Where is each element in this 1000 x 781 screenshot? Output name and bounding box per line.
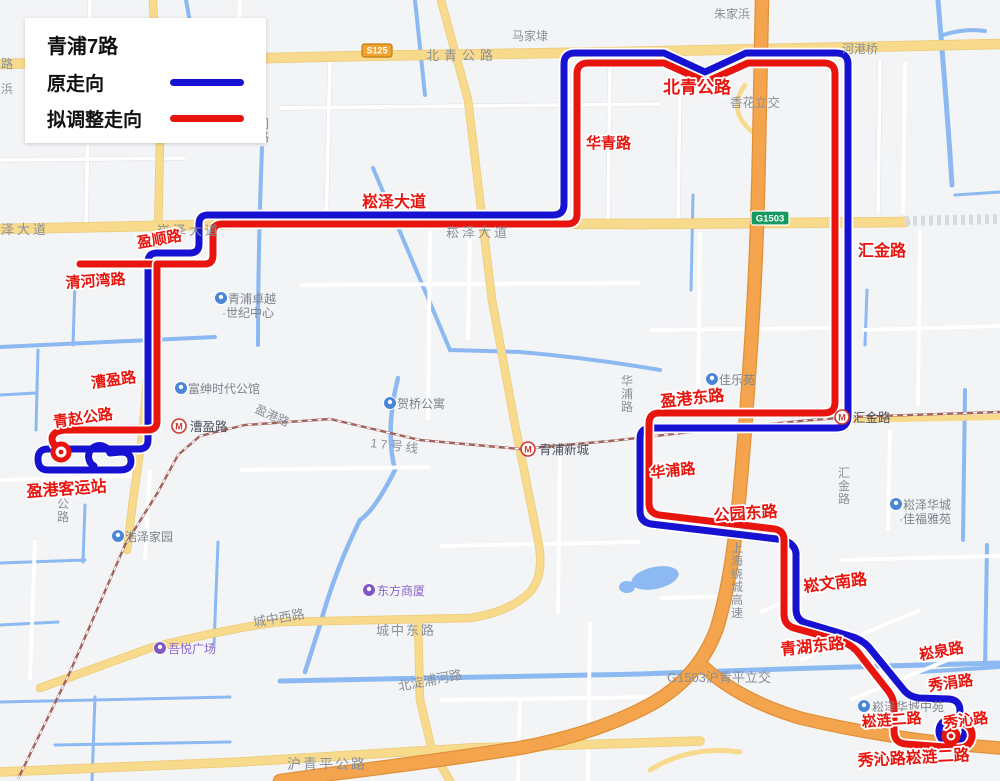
poi-贺桥公寓: 贺桥公寓 [384,396,446,411]
map-label: 华浦路 [621,374,633,414]
legend-item-adjusted: 拟调整走向 [47,105,247,132]
map-label: 城中东路 [376,623,436,638]
poi-佳乐苑: 佳乐苑 [706,373,756,388]
map-label: 汇金路 [838,466,850,506]
poi-浩泽家园: 浩泽家园 [112,529,174,544]
legend-swatch-adjusted-line [170,115,244,122]
poi-吾悦广场: 吾悦广场 [154,642,217,657]
map-label: 河港桥 [842,42,878,56]
map-label: 北青公路 [426,48,498,63]
map-label: 浜 [1,82,13,96]
legend-swatch-original-line [170,79,244,86]
svg-text:S125: S125 [366,46,387,56]
legend-title: 青浦7路 [47,30,266,59]
map-label: 朱家浜 [714,6,750,21]
svg-text:·佳福雅苑: ·佳福雅苑 [899,511,951,526]
poi-富绅时代公馆: 富绅时代公馆 [175,381,261,396]
svg-text:浩泽家园: 浩泽家园 [125,529,173,544]
poi-崧泽华城: 崧泽华城·佳福雅苑 [890,498,952,527]
svg-text:M: M [838,412,846,422]
svg-text:富绅时代公馆: 富绅时代公馆 [188,381,260,396]
svg-text:汇金路: 汇金路 [853,410,891,425]
legend-label-original: 原走向 [47,69,104,96]
road-badge-S125: S125 [362,44,392,57]
poi-青浦卓越: 青浦卓越·世纪中心 [215,292,277,321]
svg-text:M: M [524,444,532,454]
svg-text:M: M [175,421,183,431]
svg-text:东方商厦: 东方商厦 [377,583,425,598]
road-badge-G1503: G1503 [751,211,789,225]
svg-text:青浦新城: 青浦新城 [539,442,590,457]
legend-card: 青浦7路 原走向 拟调整走向 [25,18,266,143]
svg-text:G1503: G1503 [756,214,785,225]
map-label: G1503沪青平立交 [667,670,771,685]
metro-station-汇金路: M汇金路 [835,410,891,425]
poi-东方商厦: 东方商厦 [363,583,426,598]
route-label: 华青路 [586,134,632,152]
legend-label-adjusted: 拟调整走向 [47,105,142,132]
map-label: 香花立交 [730,95,780,110]
map-label: 沪青平公路 [287,756,367,772]
svg-text:青浦卓越: 青浦卓越 [228,292,276,306]
svg-text:崧泽华城: 崧泽华城 [903,498,951,512]
route-label: 汇金路 [858,241,907,260]
svg-text:佳乐苑: 佳乐苑 [719,373,755,387]
route-label: 崧泽大道 [362,192,426,211]
terminal-dot-southeast [949,734,954,739]
map-label: 泽大道 [1,222,49,237]
legend-item-original: 原走向 [47,69,247,96]
map-label: 公路 [57,497,69,524]
metro-station-漕盈路: M漕盈路 [172,419,228,434]
svg-text:贺桥公寓: 贺桥公寓 [397,396,445,411]
map-label: 上海绕城高速 [731,541,743,620]
map-viewport[interactable]: S125G1503 M漕盈路M青浦新城M汇金路 青浦卓越·世纪中心富绅时代公馆贺… [0,0,1000,781]
svg-text:漕盈路: 漕盈路 [190,419,228,434]
map-label: 路 [1,56,13,71]
map-label: 马家埭 [512,28,548,43]
svg-text:吾悦广场: 吾悦广场 [168,642,216,656]
route-label: 北青公路 [663,77,732,97]
svg-text:·世纪中心: ·世纪中心 [222,305,274,320]
map-label: 崧泽大道 [446,225,510,240]
metro-station-青浦新城: M青浦新城 [521,442,590,457]
terminal-dot-southwest [59,450,64,455]
